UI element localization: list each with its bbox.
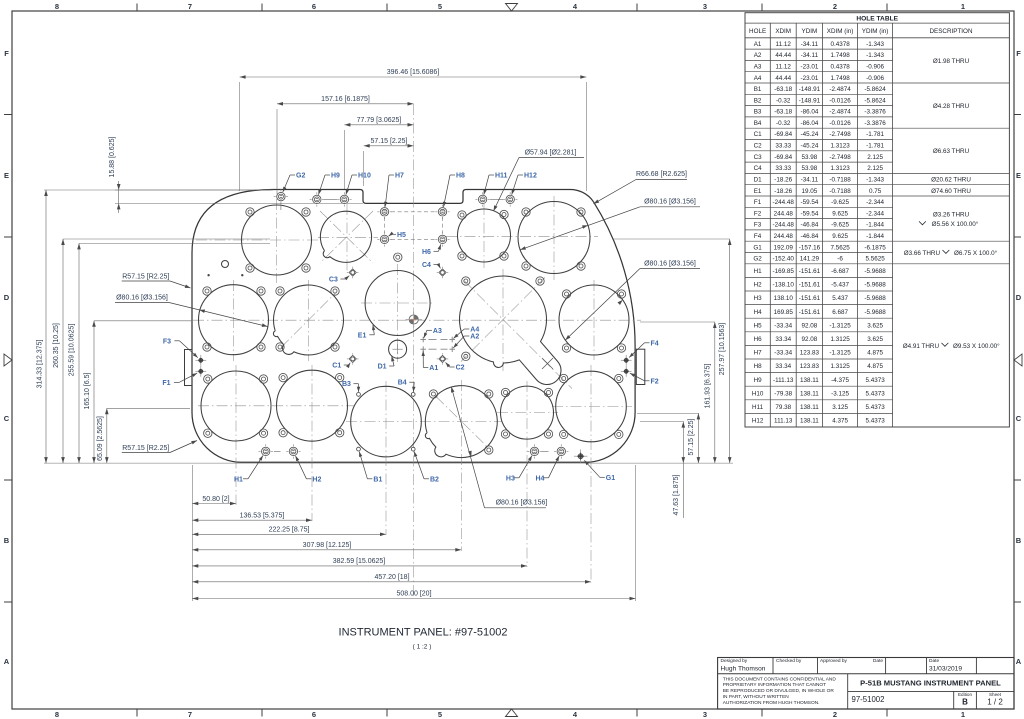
- svg-text:-3.3876: -3.3876: [864, 109, 886, 116]
- svg-text:C3: C3: [754, 154, 763, 161]
- svg-text:5.4373: 5.4373: [865, 404, 885, 411]
- svg-text:-148.91: -148.91: [799, 86, 821, 93]
- svg-text:D: D: [4, 293, 10, 302]
- svg-text:79.38: 79.38: [775, 404, 791, 411]
- svg-text:-5.9688: -5.9688: [864, 295, 886, 302]
- svg-text:H1: H1: [754, 268, 763, 275]
- svg-text:65.09 [2.5625]: 65.09 [2.5625]: [97, 416, 104, 461]
- svg-text:Date: Date: [929, 658, 939, 664]
- svg-text:B1: B1: [373, 476, 382, 483]
- svg-text:4.875: 4.875: [867, 363, 883, 370]
- svg-text:H11: H11: [752, 404, 764, 411]
- svg-text:HOLE TABLE: HOLE TABLE: [856, 15, 898, 22]
- svg-text:138.11: 138.11: [800, 377, 819, 384]
- svg-text:-69.84: -69.84: [774, 131, 792, 138]
- svg-text:R66.68 [R2.625]: R66.68 [R2.625]: [636, 171, 687, 178]
- svg-text:A2: A2: [754, 52, 762, 59]
- svg-text:53.98: 53.98: [802, 165, 818, 172]
- svg-text:-9.625: -9.625: [831, 222, 849, 229]
- svg-text:0.4378: 0.4378: [830, 63, 850, 70]
- svg-text:H5: H5: [754, 322, 763, 329]
- svg-text:-111.13: -111.13: [773, 377, 794, 384]
- svg-text:5.5625: 5.5625: [865, 256, 885, 263]
- svg-text:-151.61: -151.61: [799, 282, 821, 289]
- svg-text:A4: A4: [470, 327, 479, 334]
- svg-text:6: 6: [312, 710, 316, 719]
- svg-text:257.97 [10.1563]: 257.97 [10.1563]: [719, 323, 726, 376]
- svg-text:D1: D1: [378, 364, 387, 371]
- svg-text:H3: H3: [506, 475, 515, 482]
- svg-text:-6: -6: [837, 256, 843, 263]
- svg-text:G2: G2: [753, 256, 762, 263]
- svg-text:-1.781: -1.781: [866, 143, 884, 150]
- svg-text:-6.1875: -6.1875: [864, 244, 886, 251]
- svg-text:F3: F3: [754, 222, 762, 229]
- svg-text:77.79 [3.0625]: 77.79 [3.0625]: [357, 117, 402, 124]
- svg-text:222.25 [8.75]: 222.25 [8.75]: [269, 527, 310, 534]
- svg-text:-1.343: -1.343: [866, 41, 884, 48]
- svg-text:50.80 [2]: 50.80 [2]: [202, 496, 229, 503]
- svg-text:-33.34: -33.34: [774, 322, 792, 329]
- svg-text:THIS DOCUMENT CONTAINS CONFIDE: THIS DOCUMENT CONTAINS CONFIDENTIAL AND: [723, 676, 837, 682]
- svg-text:C1: C1: [754, 131, 763, 138]
- svg-text:192.09: 192.09: [774, 244, 794, 251]
- svg-text:-1.844: -1.844: [866, 233, 884, 240]
- svg-text:0.4378: 0.4378: [830, 41, 850, 48]
- svg-text:-9.625: -9.625: [831, 199, 849, 206]
- svg-text:-169.85: -169.85: [773, 268, 795, 275]
- svg-text:C: C: [1016, 414, 1022, 423]
- svg-text:Hugh Thomson: Hugh Thomson: [721, 666, 766, 673]
- svg-text:D: D: [1016, 293, 1022, 302]
- svg-text:244.48: 244.48: [774, 210, 794, 217]
- svg-text:-3.3876: -3.3876: [864, 120, 886, 127]
- svg-text:AUTHORIZATION FROM HUGH THOMSO: AUTHORIZATION FROM HUGH THOMSON.: [723, 700, 820, 706]
- svg-text:33.33: 33.33: [775, 143, 791, 150]
- svg-text:R57.15 [R2.25]: R57.15 [R2.25]: [122, 445, 169, 452]
- svg-text:-157.16: -157.16: [799, 244, 821, 251]
- svg-text:Checked by: Checked by: [776, 658, 802, 664]
- svg-text:-151.61: -151.61: [799, 268, 821, 275]
- svg-text:Ø6.75 X 100.0°: Ø6.75 X 100.0°: [954, 249, 998, 257]
- svg-text:2: 2: [833, 2, 837, 11]
- svg-text:2: 2: [833, 710, 837, 719]
- svg-text:B: B: [4, 536, 10, 545]
- svg-text:H8: H8: [754, 363, 763, 370]
- svg-text:Approved by: Approved by: [820, 658, 848, 664]
- svg-text:A1: A1: [754, 41, 762, 48]
- svg-text:BE REPRODUCED OR DIVULGED, IN: BE REPRODUCED OR DIVULGED, IN WHOLE OR: [723, 688, 835, 694]
- svg-text:Ø80.16 [Ø3.156]: Ø80.16 [Ø3.156]: [644, 199, 696, 206]
- svg-text:Ø3.66 THRU: Ø3.66 THRU: [904, 250, 941, 257]
- svg-text:H6: H6: [754, 336, 763, 343]
- svg-text:Ø57.94 [Ø2.281]: Ø57.94 [Ø2.281]: [525, 150, 577, 157]
- svg-text:9.625: 9.625: [832, 210, 848, 217]
- svg-text:H4: H4: [754, 309, 763, 316]
- svg-text:H11: H11: [495, 173, 508, 180]
- svg-text:B2: B2: [754, 97, 762, 104]
- svg-text:-152.40: -152.40: [773, 256, 795, 263]
- svg-text:H12: H12: [752, 418, 764, 425]
- svg-text:F1: F1: [162, 380, 170, 387]
- svg-text:92.08: 92.08: [802, 336, 818, 343]
- svg-text:47.63 [1.875]: 47.63 [1.875]: [673, 475, 680, 516]
- svg-text:F4: F4: [754, 233, 762, 240]
- svg-text:Ø80.16 [Ø3.156]: Ø80.16 [Ø3.156]: [496, 499, 548, 506]
- svg-text:-46.84: -46.84: [800, 233, 818, 240]
- svg-text:C2: C2: [754, 143, 763, 150]
- svg-text:-0.32: -0.32: [776, 120, 791, 127]
- svg-text:2.125: 2.125: [867, 165, 883, 172]
- svg-text:138.10: 138.10: [774, 295, 794, 302]
- svg-text:9.625: 9.625: [832, 233, 848, 240]
- svg-text:C: C: [4, 414, 10, 423]
- svg-text:4.875: 4.875: [867, 350, 883, 357]
- svg-text:Ø9.53 X 100.00°: Ø9.53 X 100.00°: [953, 342, 1000, 350]
- svg-text:F2: F2: [651, 378, 659, 385]
- svg-text:396.46 [15.6086]: 396.46 [15.6086]: [387, 69, 440, 76]
- svg-text:-1.781: -1.781: [866, 131, 884, 138]
- svg-text:-1.3125: -1.3125: [829, 350, 851, 357]
- svg-text:-5.8624: -5.8624: [864, 97, 886, 104]
- svg-text:-2.344: -2.344: [866, 199, 884, 206]
- svg-text:7: 7: [188, 2, 192, 11]
- svg-text:8: 8: [55, 710, 59, 719]
- svg-text:-0.906: -0.906: [866, 75, 884, 82]
- svg-text:169.85: 169.85: [774, 309, 794, 316]
- svg-text:-1.343: -1.343: [866, 177, 884, 184]
- svg-text:5.437: 5.437: [832, 295, 848, 302]
- svg-text:260.35 [10.25]: 260.35 [10.25]: [53, 323, 60, 368]
- svg-text:H7: H7: [754, 350, 763, 357]
- svg-text:H12: H12: [524, 173, 537, 180]
- svg-text:4: 4: [573, 2, 578, 11]
- svg-text:P-51B MUSTANG INSTRUMENT PANEL: P-51B MUSTANG INSTRUMENT PANEL: [860, 678, 1001, 687]
- svg-text:C1: C1: [332, 363, 341, 370]
- svg-text:-45.24: -45.24: [800, 131, 818, 138]
- svg-text:255.59 [10.0625]: 255.59 [10.0625]: [69, 324, 76, 377]
- svg-text:33.34: 33.34: [775, 363, 791, 370]
- svg-text:-23.01: -23.01: [800, 75, 818, 82]
- svg-text:H10: H10: [752, 390, 764, 397]
- svg-text:-1.3125: -1.3125: [829, 322, 851, 329]
- svg-text:-86.04: -86.04: [800, 120, 818, 127]
- svg-text:44.44: 44.44: [775, 75, 791, 82]
- svg-text:2.125: 2.125: [867, 154, 883, 161]
- svg-text:Ø6.63 THRU: Ø6.63 THRU: [933, 148, 970, 155]
- svg-text:5.4373: 5.4373: [865, 377, 885, 384]
- svg-text:6: 6: [312, 2, 316, 11]
- svg-text:H2: H2: [312, 476, 321, 483]
- svg-text:382.59 [15.0625]: 382.59 [15.0625]: [333, 558, 386, 565]
- svg-text:3: 3: [703, 710, 707, 719]
- svg-text:-63.18: -63.18: [774, 86, 792, 93]
- svg-text:3.625: 3.625: [867, 336, 883, 343]
- svg-text:19.05: 19.05: [802, 188, 818, 195]
- svg-text:-59.54: -59.54: [800, 210, 818, 217]
- svg-text:Ø1.98 THRU: Ø1.98 THRU: [933, 58, 970, 65]
- svg-text:H5: H5: [397, 232, 406, 239]
- svg-text:33.34: 33.34: [775, 336, 791, 343]
- svg-text:5: 5: [438, 710, 442, 719]
- svg-text:-2.4874: -2.4874: [829, 109, 851, 116]
- svg-text:3.125: 3.125: [832, 404, 848, 411]
- svg-text:-69.84: -69.84: [774, 154, 792, 161]
- svg-text:-2.4874: -2.4874: [829, 86, 851, 93]
- svg-text:314.33 [12.375]: 314.33 [12.375]: [37, 340, 44, 389]
- svg-text:H2: H2: [754, 282, 763, 289]
- svg-text:A4: A4: [754, 75, 762, 82]
- svg-text:F2: F2: [754, 210, 762, 217]
- svg-text:-138.10: -138.10: [773, 282, 795, 289]
- svg-text:15.88 [0.625]: 15.88 [0.625]: [109, 137, 116, 178]
- svg-text:1.3125: 1.3125: [830, 336, 850, 343]
- svg-text:165.10 [6.5]: 165.10 [6.5]: [84, 372, 91, 409]
- svg-text:157.16 [6.1875]: 157.16 [6.1875]: [321, 96, 370, 103]
- svg-text:HOLE: HOLE: [749, 28, 766, 35]
- svg-text:-0.7188: -0.7188: [829, 177, 851, 184]
- svg-text:-5.8624: -5.8624: [864, 86, 886, 93]
- svg-text:PROPRIETARY INFORMATION THAT C: PROPRIETARY INFORMATION THAT CANNOT: [723, 682, 826, 688]
- svg-text:Ø4.91 THRU: Ø4.91 THRU: [903, 343, 940, 350]
- svg-text:B4: B4: [398, 380, 407, 387]
- svg-text:161.93 [6.375]: 161.93 [6.375]: [704, 364, 711, 409]
- svg-text:H6: H6: [422, 249, 431, 256]
- svg-text:IN PART, WITHOUT WRITTEN: IN PART, WITHOUT WRITTEN: [723, 694, 790, 700]
- svg-text:4: 4: [573, 710, 578, 719]
- svg-text:0.75: 0.75: [869, 188, 882, 195]
- svg-text:-6.687: -6.687: [831, 268, 849, 275]
- svg-text:-23.01: -23.01: [800, 63, 818, 70]
- svg-text:1.7498: 1.7498: [830, 52, 850, 59]
- svg-text:INSTRUMENT PANEL: #97-51002: INSTRUMENT PANEL: #97-51002: [339, 626, 508, 638]
- svg-text:-33.34: -33.34: [774, 350, 792, 357]
- svg-text:-5.9688: -5.9688: [864, 309, 886, 316]
- svg-text:D1: D1: [754, 177, 763, 184]
- svg-text:-18.26: -18.26: [774, 188, 792, 195]
- svg-text:E: E: [1016, 171, 1021, 180]
- svg-text:141.29: 141.29: [800, 256, 820, 263]
- svg-text:A: A: [1016, 657, 1022, 666]
- svg-text:Designed by: Designed by: [721, 658, 748, 664]
- svg-text:57.15 [2.25]: 57.15 [2.25]: [371, 138, 408, 145]
- svg-text:F4: F4: [651, 340, 659, 347]
- svg-text:-244.48: -244.48: [773, 199, 795, 206]
- svg-text:-1.844: -1.844: [866, 222, 884, 229]
- svg-text:DESCRIPTION: DESCRIPTION: [929, 28, 972, 35]
- svg-text:Date: Date: [873, 658, 883, 664]
- svg-text:H4: H4: [536, 475, 545, 482]
- svg-text:H1: H1: [234, 476, 243, 483]
- svg-text:H9: H9: [754, 377, 763, 384]
- svg-text:H9: H9: [331, 173, 340, 180]
- svg-text:B3: B3: [342, 381, 351, 388]
- svg-text:5: 5: [438, 2, 442, 11]
- svg-text:XDIM (in): XDIM (in): [827, 28, 854, 35]
- svg-text:5.4373: 5.4373: [865, 418, 885, 425]
- svg-text:( 1 :2 ): ( 1 :2 ): [413, 643, 432, 650]
- svg-text:11.12: 11.12: [776, 63, 792, 70]
- svg-text:G1: G1: [606, 475, 615, 482]
- svg-text:244.48: 244.48: [774, 233, 794, 240]
- svg-text:-5.9688: -5.9688: [864, 268, 886, 275]
- svg-text:Ø80.16 [Ø3.156]: Ø80.16 [Ø3.156]: [116, 295, 168, 302]
- svg-text:-86.04: -86.04: [800, 109, 818, 116]
- svg-text:Ø80.16 [Ø3.156]: Ø80.16 [Ø3.156]: [644, 260, 696, 267]
- svg-text:-0.0126: -0.0126: [829, 97, 851, 104]
- svg-text:11.12: 11.12: [776, 41, 792, 48]
- svg-text:111.13: 111.13: [774, 418, 793, 425]
- svg-text:A3: A3: [754, 63, 762, 70]
- svg-text:H10: H10: [358, 173, 371, 180]
- svg-text:C2: C2: [456, 365, 465, 372]
- svg-text:31/03/2019: 31/03/2019: [929, 666, 962, 673]
- svg-text:-45.24: -45.24: [800, 143, 818, 150]
- svg-text:7: 7: [188, 710, 192, 719]
- svg-text:-2.344: -2.344: [866, 210, 884, 217]
- svg-text:YDIM: YDIM: [802, 28, 818, 35]
- svg-text:YDIM (in): YDIM (in): [862, 28, 889, 35]
- svg-text:H3: H3: [754, 295, 763, 302]
- svg-text:-0.32: -0.32: [776, 97, 791, 104]
- svg-text:B4: B4: [754, 120, 762, 127]
- svg-text:3.625: 3.625: [867, 322, 883, 329]
- svg-text:1: 1: [961, 710, 965, 719]
- svg-text:R57.15 [R2.25]: R57.15 [R2.25]: [122, 273, 169, 280]
- svg-text:C3: C3: [329, 277, 338, 284]
- svg-text:-18.26: -18.26: [774, 177, 792, 184]
- svg-text:F3: F3: [163, 338, 171, 345]
- svg-text:B3: B3: [754, 109, 762, 116]
- svg-text:A3: A3: [433, 328, 442, 335]
- svg-text:F: F: [1016, 49, 1021, 58]
- svg-text:33.33: 33.33: [775, 165, 791, 172]
- svg-text:H8: H8: [456, 173, 465, 180]
- svg-text:Ø4.28 THRU: Ø4.28 THRU: [933, 103, 970, 110]
- svg-text:XDIM: XDIM: [775, 28, 791, 35]
- svg-text:H7: H7: [395, 173, 404, 180]
- svg-text:-0.7188: -0.7188: [829, 188, 851, 195]
- svg-text:-2.7498: -2.7498: [829, 154, 851, 161]
- svg-text:1.3123: 1.3123: [830, 165, 850, 172]
- svg-text:G2: G2: [296, 173, 305, 180]
- svg-text:-34.11: -34.11: [801, 177, 819, 184]
- svg-text:-148.91: -148.91: [799, 97, 821, 104]
- svg-text:-151.61: -151.61: [799, 295, 821, 302]
- svg-text:-0.906: -0.906: [866, 63, 884, 70]
- svg-text:G1: G1: [753, 244, 762, 251]
- svg-text:F1: F1: [754, 199, 762, 206]
- svg-text:1 / 2: 1 / 2: [987, 697, 1003, 706]
- svg-text:E1: E1: [754, 188, 762, 195]
- svg-text:A2: A2: [470, 334, 479, 341]
- svg-text:-3.125: -3.125: [831, 390, 849, 397]
- svg-text:136.53 [5.375]: 136.53 [5.375]: [240, 512, 285, 519]
- svg-text:457.20 [18]: 457.20 [18]: [374, 574, 409, 581]
- svg-text:123.83: 123.83: [800, 363, 820, 370]
- svg-text:Ø3.26 THRU: Ø3.26 THRU: [933, 211, 970, 218]
- svg-text:C4: C4: [754, 165, 763, 172]
- svg-text:-34.11: -34.11: [801, 41, 819, 48]
- svg-text:-244.48: -244.48: [773, 222, 795, 229]
- svg-text:Ø20.62 THRU: Ø20.62 THRU: [931, 177, 971, 184]
- svg-text:138.11: 138.11: [800, 390, 819, 397]
- svg-text:44.44: 44.44: [775, 52, 791, 59]
- svg-text:-1.343: -1.343: [866, 52, 884, 59]
- svg-text:E1: E1: [358, 332, 367, 339]
- svg-text:Edition: Edition: [958, 692, 972, 697]
- svg-text:-5.9688: -5.9688: [864, 282, 886, 289]
- svg-text:8: 8: [55, 2, 59, 11]
- svg-text:B: B: [962, 697, 968, 706]
- svg-text:C4: C4: [422, 262, 431, 269]
- svg-text:-79.38: -79.38: [774, 390, 792, 397]
- svg-text:1.7498: 1.7498: [830, 75, 850, 82]
- svg-text:B1: B1: [754, 86, 762, 93]
- svg-text:-46.84: -46.84: [800, 222, 818, 229]
- svg-text:4.375: 4.375: [832, 418, 848, 425]
- svg-text:7.5625: 7.5625: [830, 244, 850, 251]
- svg-text:5.4373: 5.4373: [865, 390, 885, 397]
- svg-text:B2: B2: [430, 476, 439, 483]
- svg-text:-0.0126: -0.0126: [829, 120, 851, 127]
- svg-text:92.08: 92.08: [802, 322, 818, 329]
- svg-text:6.687: 6.687: [832, 309, 848, 316]
- svg-text:-4.375: -4.375: [831, 377, 849, 384]
- svg-text:3: 3: [703, 2, 707, 11]
- svg-text:508.00 [20]: 508.00 [20]: [396, 591, 431, 598]
- svg-text:1.3125: 1.3125: [830, 363, 850, 370]
- svg-text:97-51002: 97-51002: [852, 695, 885, 704]
- svg-text:138.11: 138.11: [800, 418, 819, 425]
- svg-text:-59.54: -59.54: [800, 199, 818, 206]
- svg-text:Ø74.60 THRU: Ø74.60 THRU: [931, 188, 971, 195]
- svg-text:307.98 [12.125]: 307.98 [12.125]: [303, 542, 352, 549]
- svg-text:57.15 [2.25]: 57.15 [2.25]: [688, 418, 695, 455]
- svg-text:1: 1: [961, 2, 965, 11]
- svg-text:-2.7498: -2.7498: [829, 131, 851, 138]
- svg-text:-5.437: -5.437: [831, 282, 849, 289]
- svg-text:53.98: 53.98: [802, 154, 818, 161]
- svg-text:E: E: [4, 171, 9, 180]
- svg-text:A1: A1: [429, 365, 438, 372]
- svg-text:1.3123: 1.3123: [830, 143, 850, 150]
- svg-text:Sheet: Sheet: [989, 692, 1002, 697]
- svg-text:-151.61: -151.61: [799, 309, 821, 316]
- svg-text:B: B: [1016, 536, 1022, 545]
- svg-text:-34.11: -34.11: [801, 52, 819, 59]
- svg-text:-63.18: -63.18: [774, 109, 792, 116]
- svg-text:A: A: [4, 657, 10, 666]
- svg-text:F: F: [4, 49, 9, 58]
- svg-text:123.83: 123.83: [800, 350, 820, 357]
- svg-text:138.11: 138.11: [800, 404, 819, 411]
- svg-text:Ø5.56 X 100.00°: Ø5.56 X 100.00°: [932, 220, 979, 228]
